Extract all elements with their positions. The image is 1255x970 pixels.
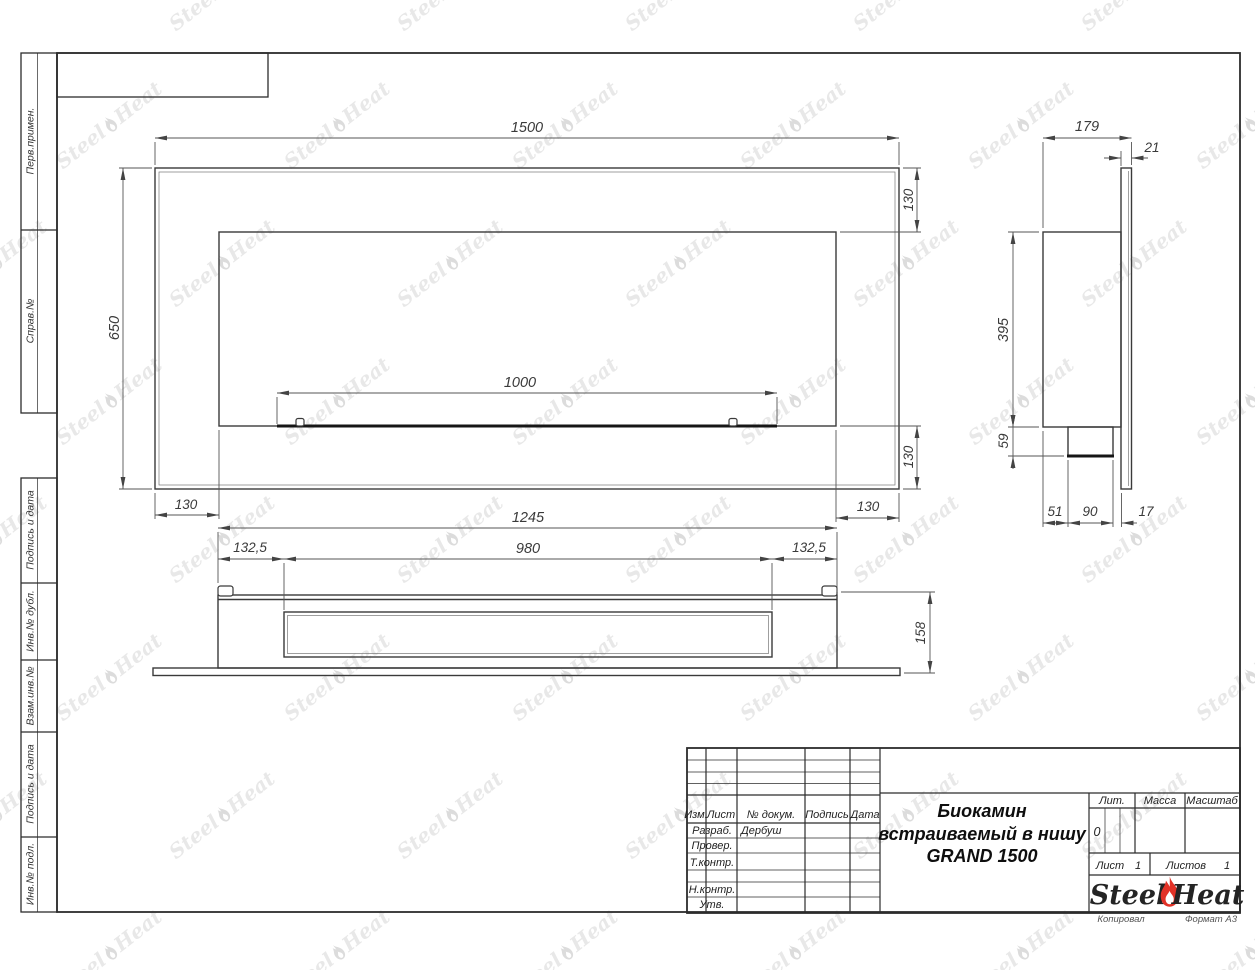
side-view-dims: 179 21 395 59 51 90 <box>996 119 1160 527</box>
doc-title-line3: GRAND 1500 <box>926 846 1037 866</box>
dim-bottom-slot: 980 <box>516 541 540 557</box>
col-sign: Подпись <box>805 809 849 821</box>
lit-label: Лит. <box>1098 795 1125 807</box>
sheets-value: 1 <box>1224 860 1230 872</box>
massa-label: Масса <box>1144 795 1177 807</box>
front-view <box>155 168 899 489</box>
drawing-sheet: Steel HeatSteel HeatSteel HeatSteel Heat… <box>0 0 1255 970</box>
dim-side-front-gap: 17 <box>1138 504 1154 519</box>
drawing-svg: Перв.примен. Справ.№ Подпись и дата Инв.… <box>0 0 1255 970</box>
title-block: Изм. Лист № докум. Подпись Дата Разраб. … <box>684 748 1245 925</box>
sheet-value: 1 <box>1135 860 1141 872</box>
masshtab-label: Масштаб <box>1186 795 1238 807</box>
dim-front-offset-right: 130 <box>857 499 880 514</box>
stamp-perv-primen: Перв.примен. <box>25 108 37 175</box>
stamp-inv-podl: Инв.№ подл. <box>25 843 37 905</box>
razrab-name: Дербуш <box>739 825 782 837</box>
stamp-inv-dubl: Инв.№ дубл. <box>25 590 37 652</box>
dim-front-offset-left: 130 <box>175 497 198 512</box>
dim-burner-width: 1000 <box>504 375 536 391</box>
top-left-stamp <box>57 53 268 97</box>
sheet-label: Лист <box>1095 860 1124 872</box>
row-utv: Утв. <box>699 899 725 911</box>
lit-value: 0 <box>1094 825 1101 839</box>
dim-front-offset-top: 130 <box>901 188 916 211</box>
side-view <box>1043 168 1132 489</box>
stamp-podpis-data-2: Подпись и дата <box>25 744 37 824</box>
dim-front-width: 1500 <box>511 120 543 136</box>
dim-side-back-offset: 51 <box>1047 504 1062 519</box>
dim-side-depth: 179 <box>1075 119 1099 135</box>
stamp-sprav-no: Справ.№ <box>25 299 37 344</box>
sheet-frame <box>57 53 1240 912</box>
col-date: Дата <box>848 809 879 821</box>
col-list: Лист <box>706 809 735 821</box>
dim-side-panel: 21 <box>1143 140 1159 155</box>
doc-title-line2: встраиваемый в нишу <box>878 824 1087 844</box>
dim-side-body-height: 395 <box>996 317 1012 342</box>
row-nkontr: Н.контр. <box>689 884 736 896</box>
left-margin-stamps: Перв.примен. Справ.№ Подпись и дата Инв.… <box>21 53 57 912</box>
dim-front-offset-bottom: 130 <box>901 445 916 468</box>
dim-side-tray-height: 59 <box>996 433 1011 449</box>
col-doc: № докум. <box>747 809 795 821</box>
dim-front-height: 650 <box>107 316 123 340</box>
burner-tab-left <box>296 419 304 427</box>
bottom-tab-left <box>218 586 233 596</box>
logo-steel-text: Steel <box>1090 880 1167 911</box>
bottom-plate <box>153 668 900 676</box>
doc-title-line1: Биокамин <box>937 801 1026 821</box>
row-tkontr: Т.контр. <box>690 857 734 869</box>
logo-heat-text: Heat <box>1171 880 1245 911</box>
steelheat-logo: Steel Heat <box>1090 877 1245 911</box>
bottom-slot <box>284 612 772 657</box>
side-tray <box>1068 427 1113 456</box>
inner-frame <box>57 53 1240 912</box>
dim-side-tray-depth: 90 <box>1082 504 1098 519</box>
bottom-tab-right <box>822 586 837 596</box>
sheets-label: Листов <box>1165 860 1206 872</box>
front-view-dims: 1500 650 130 130 130 130 <box>107 120 921 522</box>
dim-bottom-offset-right: 132,5 <box>792 540 826 555</box>
bottom-view <box>153 586 900 676</box>
dim-bottom-offset-left: 132,5 <box>233 540 267 555</box>
stamp-vzam-inv: Взам.инв.№ <box>25 666 37 725</box>
col-izm: Изм. <box>684 809 707 821</box>
dim-bottom-width: 1245 <box>512 510 545 526</box>
kopiroval-label: Копировал <box>1097 914 1145 925</box>
format-label: Формат А3 <box>1185 914 1238 925</box>
stamp-podpis-data-1: Подпись и дата <box>25 490 37 570</box>
row-razrab: Разраб. <box>692 825 732 837</box>
dim-bottom-depth: 158 <box>913 621 928 644</box>
burner-tab-right <box>729 419 737 427</box>
side-body <box>1043 232 1121 427</box>
row-prover: Провер. <box>692 840 733 852</box>
side-front-panel <box>1121 168 1132 489</box>
